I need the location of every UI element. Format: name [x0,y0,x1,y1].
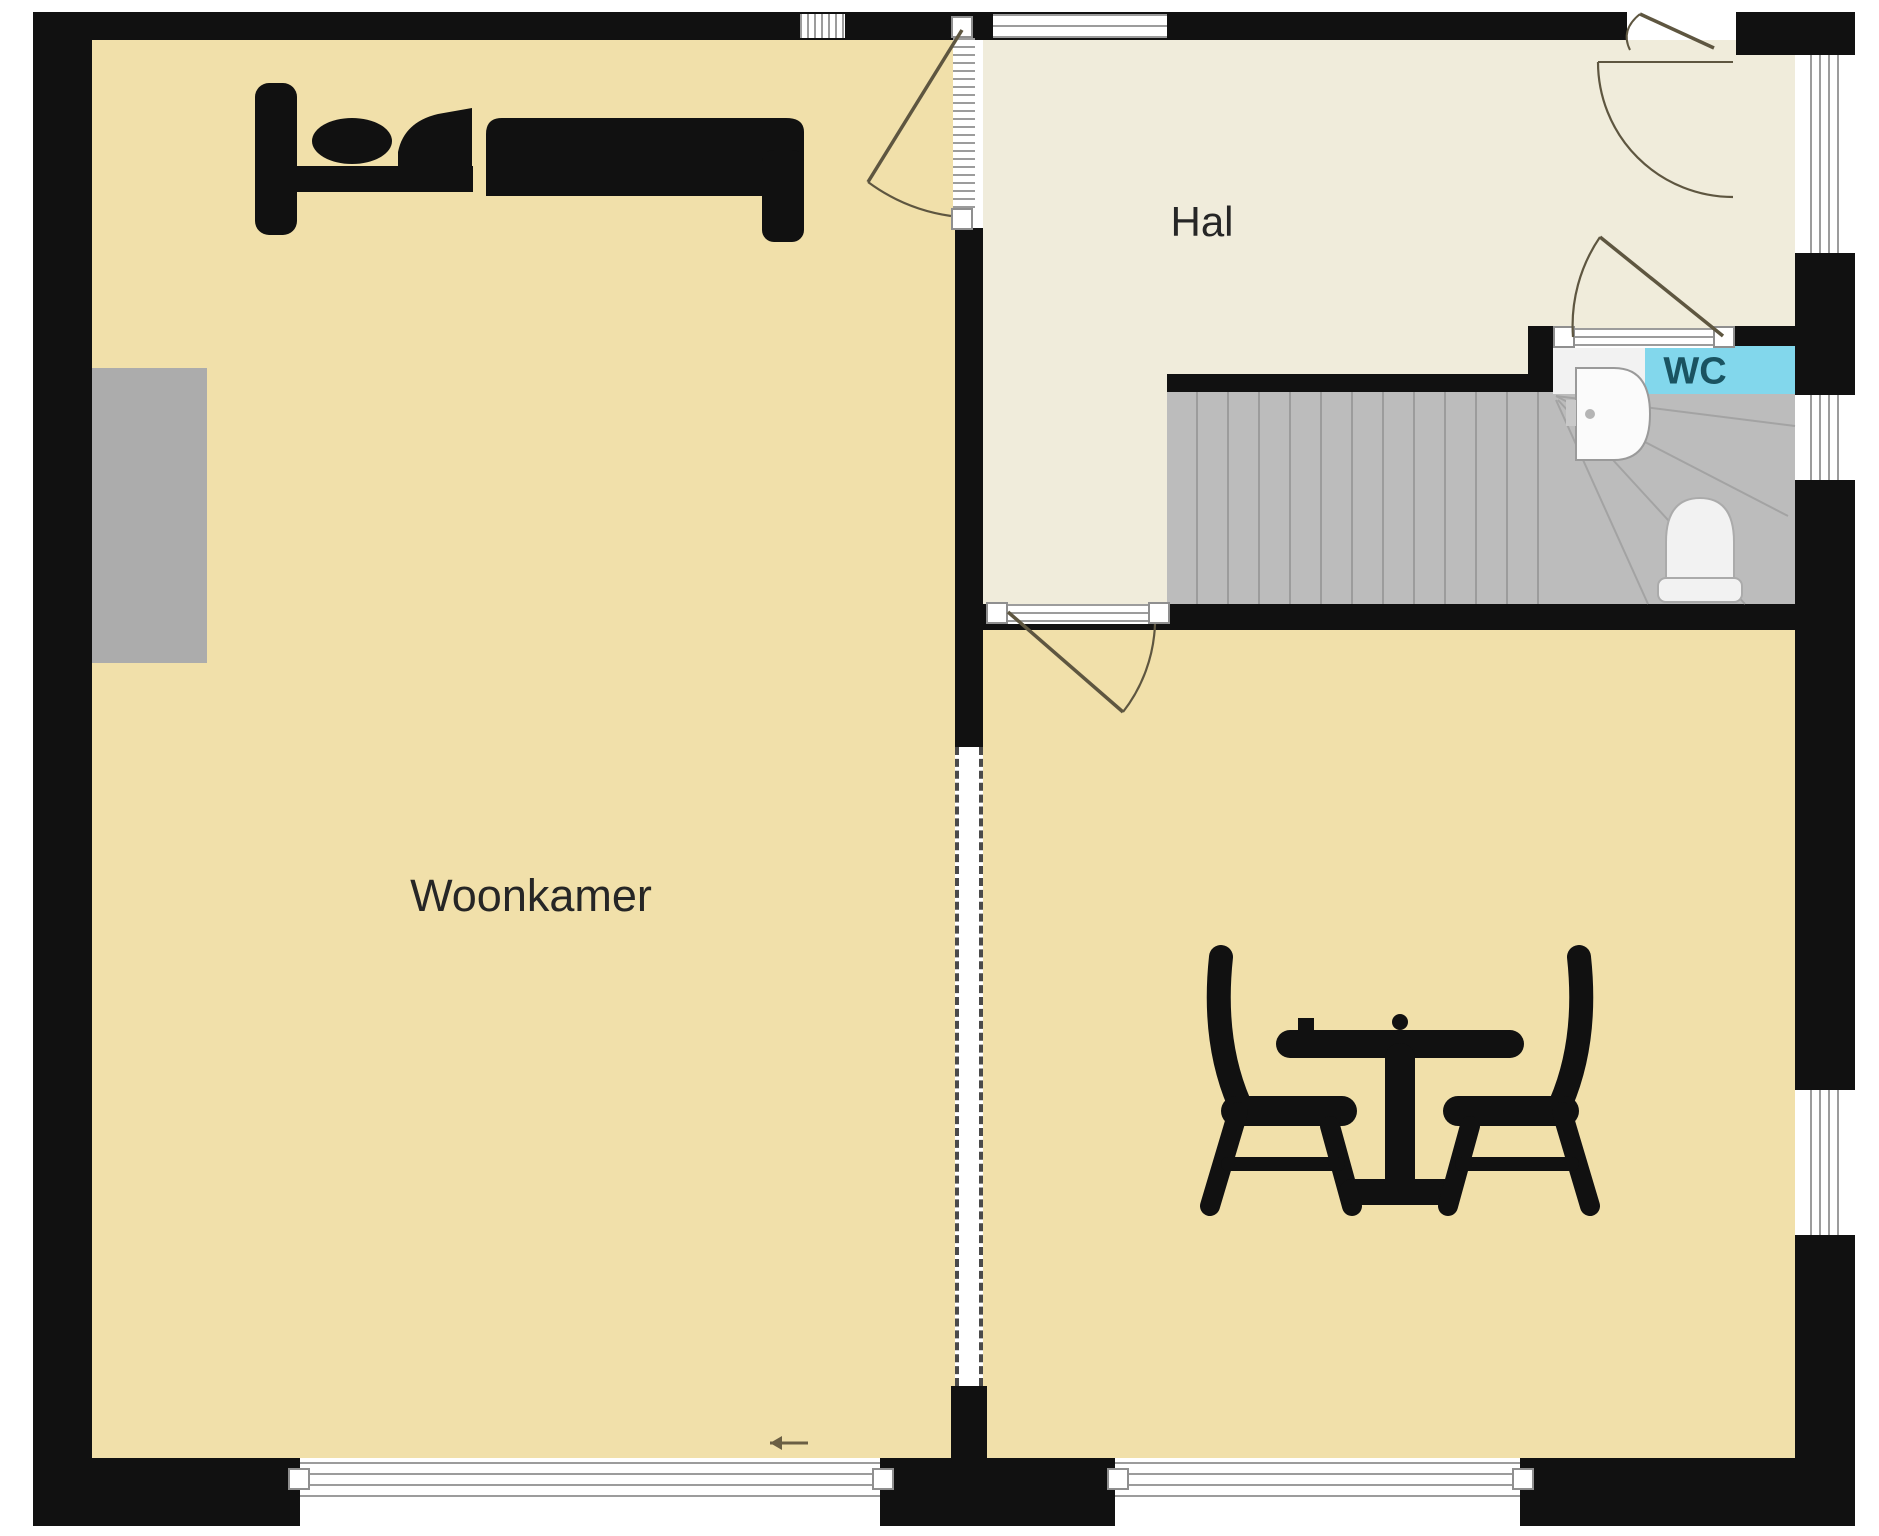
hall-label: Hal [1170,198,1233,246]
wc-door-panel [1575,328,1713,348]
bottom-wall-right [1520,1458,1855,1526]
top-wall-window [993,14,1167,38]
open-connection-dashed [955,747,983,1386]
door-hinge [1713,326,1735,348]
window-post [288,1468,310,1490]
floorplan: Woonkamer Hal WC [0,0,1879,1536]
right-window-top [1810,55,1840,253]
living-room-door-panel [953,38,975,208]
window-post [1512,1468,1534,1490]
hall-dining-door-panel [1008,604,1148,624]
chimney-block [92,368,207,663]
door-hinge [951,16,973,38]
bottom-wall-left [33,1458,300,1526]
wc-wall-stub [1528,326,1553,392]
window-post [1107,1468,1129,1490]
door-hinge [951,208,973,230]
top-wall [33,12,1855,40]
bottom-wall-mid [880,1458,1115,1526]
top-wall-small-window [800,14,845,38]
top-right-corner-wall [1736,12,1855,55]
bottom-window-left [300,1462,880,1502]
bottom-window-right [1115,1462,1520,1502]
right-window-low [1810,1090,1840,1235]
stairs-top-wall [1167,374,1528,392]
right-window-mid [1810,395,1840,480]
dining-room-floor [983,630,1795,1458]
wc-wall-sliver [1735,326,1795,346]
left-wall [33,12,92,1526]
wc-label: WC [1663,351,1726,394]
front-door-opening [1627,12,1736,40]
staircase-treads [1167,392,1553,604]
living-room-floor [92,40,955,1458]
door-hinge [1148,602,1170,624]
divider-stub [951,1386,987,1458]
door-hinge [986,602,1008,624]
door-hinge [1553,326,1575,348]
window-post [872,1468,894,1490]
wc-sink-strip [1553,346,1645,394]
divider-wall [955,228,983,747]
living-room-label: Woonkamer [410,870,652,922]
